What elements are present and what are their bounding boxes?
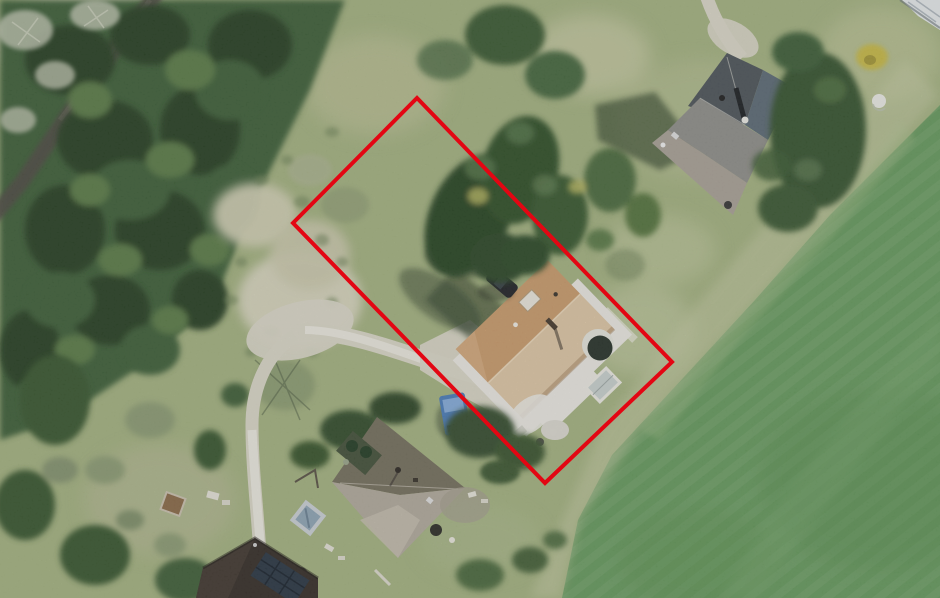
aerial-photo-view xyxy=(0,0,940,598)
grain-overlay-light xyxy=(0,0,940,598)
aerial-photo xyxy=(0,0,940,598)
